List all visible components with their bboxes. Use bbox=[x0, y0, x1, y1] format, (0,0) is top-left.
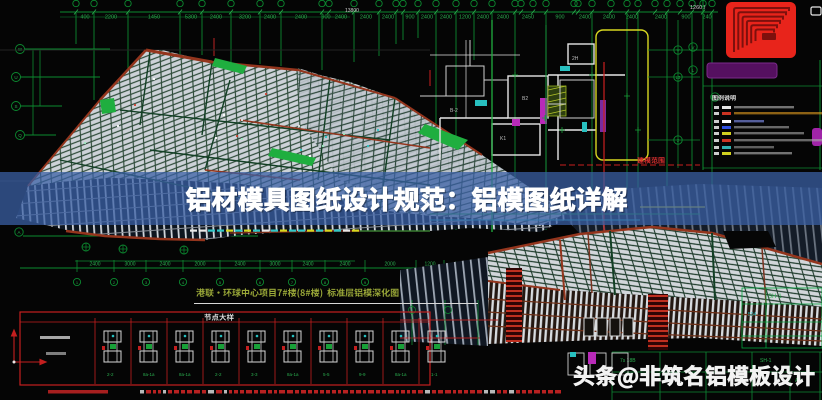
svg-text:3000: 3000 bbox=[124, 262, 135, 268]
svg-text:2400: 2400 bbox=[159, 262, 170, 268]
svg-text:504: 504 bbox=[748, 312, 757, 318]
svg-text:SH-1: SH-1 bbox=[768, 294, 782, 300]
svg-text:2400: 2400 bbox=[335, 15, 347, 21]
svg-text:900: 900 bbox=[555, 15, 564, 21]
svg-text:2400: 2400 bbox=[360, 15, 372, 21]
svg-text:900: 900 bbox=[321, 15, 330, 21]
svg-text:2400: 2400 bbox=[626, 15, 638, 21]
svg-text:2400: 2400 bbox=[89, 262, 100, 268]
svg-text:3000: 3000 bbox=[269, 262, 280, 268]
svg-text:2200: 2200 bbox=[105, 15, 117, 21]
svg-text:2000: 2000 bbox=[194, 262, 205, 268]
svg-text:5-5: 5-5 bbox=[323, 372, 330, 377]
svg-text:2H: 2H bbox=[572, 56, 579, 62]
svg-text:Q: Q bbox=[18, 133, 22, 138]
svg-text:2-2: 2-2 bbox=[215, 372, 222, 377]
svg-text:8a-1a: 8a-1a bbox=[143, 372, 155, 377]
svg-text:2400: 2400 bbox=[603, 15, 615, 21]
svg-text:A: A bbox=[17, 230, 20, 235]
svg-text:2400: 2400 bbox=[210, 15, 222, 21]
svg-text:2400: 2400 bbox=[440, 15, 452, 21]
svg-text:8a-1a: 8a-1a bbox=[395, 372, 407, 377]
svg-text:SH-1: SH-1 bbox=[760, 358, 772, 364]
svg-text:3200: 3200 bbox=[239, 15, 251, 21]
svg-text:400: 400 bbox=[80, 15, 89, 21]
svg-text:900: 900 bbox=[681, 15, 690, 21]
svg-text:U: U bbox=[14, 75, 17, 80]
svg-text:2400: 2400 bbox=[382, 15, 394, 21]
svg-text:8a-1a: 8a-1a bbox=[179, 372, 191, 377]
svg-text:2400: 2400 bbox=[339, 262, 350, 268]
svg-text:9-9: 9-9 bbox=[359, 372, 366, 377]
svg-text:2-2: 2-2 bbox=[107, 372, 114, 377]
svg-text:B2: B2 bbox=[522, 96, 528, 102]
svg-text:2400: 2400 bbox=[579, 15, 591, 21]
svg-text:2400: 2400 bbox=[421, 15, 433, 21]
svg-text:2400: 2400 bbox=[264, 15, 276, 21]
svg-text:3-3: 3-3 bbox=[251, 372, 258, 377]
svg-text:2400: 2400 bbox=[655, 15, 667, 21]
svg-text:2400: 2400 bbox=[497, 15, 509, 21]
svg-text:B-2: B-2 bbox=[450, 108, 458, 114]
svg-text:13800: 13800 bbox=[345, 8, 359, 14]
svg-text:240: 240 bbox=[702, 15, 711, 21]
svg-text:900: 900 bbox=[405, 15, 414, 21]
svg-text:1-1: 1-1 bbox=[431, 372, 438, 377]
svg-text:2400: 2400 bbox=[477, 15, 489, 21]
svg-text:V: V bbox=[692, 45, 695, 50]
svg-text:2400: 2400 bbox=[295, 15, 307, 21]
svg-text:S: S bbox=[14, 104, 17, 109]
svg-text:K1: K1 bbox=[500, 136, 506, 142]
svg-text:2450: 2450 bbox=[522, 15, 534, 21]
svg-text:5300: 5300 bbox=[185, 15, 197, 21]
svg-text:2400: 2400 bbox=[234, 262, 245, 268]
svg-text:1450: 1450 bbox=[148, 15, 160, 21]
svg-text:1200: 1200 bbox=[459, 15, 471, 21]
svg-text:2400: 2400 bbox=[302, 262, 313, 268]
svg-text:2000: 2000 bbox=[384, 262, 395, 268]
svg-text:8a-1a: 8a-1a bbox=[287, 372, 299, 377]
